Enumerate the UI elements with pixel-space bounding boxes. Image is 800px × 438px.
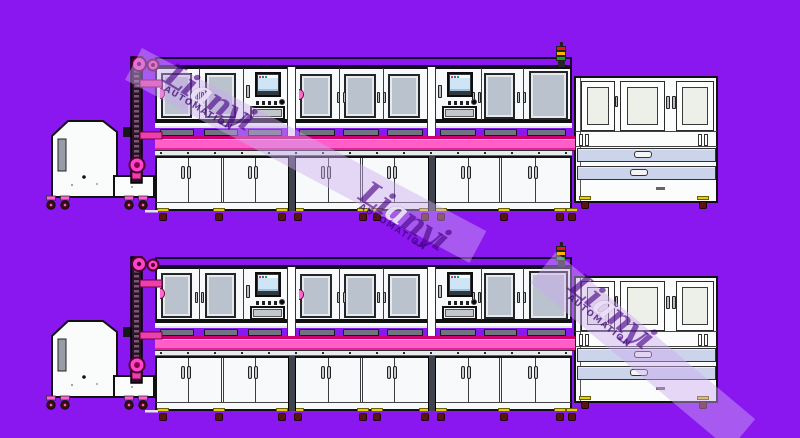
door-seam — [360, 358, 361, 402]
vent — [299, 329, 335, 336]
feeder-and-elevator — [0, 200, 175, 425]
sprocket-hub — [134, 162, 140, 168]
feeder-dot — [82, 375, 86, 379]
rail-rivet — [565, 352, 567, 354]
station-bar — [704, 334, 708, 346]
cabinet-seam — [199, 268, 200, 320]
door-seam — [188, 158, 189, 202]
panel-button — [256, 301, 259, 305]
emergency-button — [279, 299, 285, 305]
rail-rivet — [349, 152, 351, 154]
machine-window — [484, 73, 515, 119]
screen-pixel — [259, 276, 261, 278]
machine-window — [300, 74, 332, 118]
pulley-hub — [151, 63, 155, 67]
cabinet-door-handle — [528, 366, 532, 379]
caster-foot — [369, 208, 385, 221]
door-seam — [499, 158, 500, 202]
conveyor-rail — [155, 150, 572, 156]
cabinet-door-handle — [327, 366, 331, 379]
vent — [440, 129, 476, 136]
machine-window — [388, 274, 420, 318]
rail-rivet — [349, 352, 351, 354]
machine-window — [388, 74, 420, 118]
rail-rivet — [187, 152, 189, 154]
panel-door-handle — [246, 285, 250, 298]
caster-foot — [577, 196, 593, 209]
cabinet-door-handle — [467, 166, 471, 179]
vent — [387, 129, 423, 136]
vent — [527, 129, 566, 136]
vent — [204, 329, 238, 336]
panel-button — [466, 301, 469, 305]
line-roof — [155, 257, 572, 267]
vent — [387, 329, 423, 336]
station-window-pane — [587, 287, 609, 325]
door-handle — [195, 92, 198, 103]
hmi-screen — [258, 275, 278, 291]
panel-button — [274, 101, 277, 105]
screen-pixel — [262, 276, 264, 278]
machine-window — [205, 73, 236, 118]
cabinet-door-handle — [387, 166, 391, 179]
feeder-slot — [58, 339, 66, 371]
door-seam — [535, 358, 536, 402]
machine-window — [529, 71, 568, 120]
elevator-crossbar — [140, 80, 162, 87]
keyboard-tray-inner — [253, 109, 282, 117]
door-seam — [468, 358, 469, 402]
door-handle — [523, 292, 526, 303]
machine-window — [344, 274, 376, 318]
rail-rivet — [538, 352, 540, 354]
rail-rivet — [403, 352, 405, 354]
plinth-line — [156, 202, 571, 203]
rail-rivet — [214, 152, 216, 154]
panel-button — [460, 101, 463, 105]
module-post-lower — [288, 356, 296, 411]
rail-rivet — [268, 152, 270, 154]
station-divider — [575, 346, 717, 347]
sprocket-hub — [134, 362, 140, 368]
station-window-pane — [682, 287, 708, 325]
station-bar — [698, 134, 702, 146]
vent — [248, 129, 282, 136]
cabinet-door-handle — [387, 366, 391, 379]
rail-rivet — [403, 152, 405, 154]
station-window-pane — [627, 87, 658, 125]
cabinet-door-handle — [254, 366, 258, 379]
rail-rivet — [241, 152, 243, 154]
machine-line-row-2 — [0, 200, 800, 425]
panel-button — [268, 301, 271, 305]
door-handle — [201, 292, 204, 303]
vent — [484, 329, 517, 336]
door-handle — [523, 92, 526, 103]
machine-window — [529, 271, 568, 320]
keyboard-tray-inner — [445, 309, 474, 317]
vent — [299, 129, 335, 136]
elevator-crossbar — [140, 132, 162, 139]
keyboard-tray-inner — [445, 109, 474, 117]
caster-foot — [695, 396, 711, 409]
emergency-button — [279, 99, 285, 105]
station-window-pane — [682, 87, 708, 125]
hmi-screen — [450, 275, 470, 291]
panel-button — [262, 301, 265, 305]
floor-mark — [145, 410, 158, 413]
rail-rivet — [322, 352, 324, 354]
rail-rivet — [268, 352, 270, 354]
machine-window — [300, 274, 332, 318]
rail-rivet — [538, 152, 540, 154]
door-handle — [343, 92, 346, 103]
rail-rivet — [241, 352, 243, 354]
cabinet-door-handle — [534, 366, 538, 379]
door-handle — [343, 292, 346, 303]
screen-pixel — [457, 276, 459, 278]
feeder-dot — [71, 184, 73, 186]
cabinet-door-handle — [528, 166, 532, 179]
caster-foot — [496, 208, 512, 221]
rail-rivet — [214, 352, 216, 354]
tower-light-base — [558, 61, 565, 67]
vent — [248, 329, 282, 336]
panel-button — [460, 301, 463, 305]
door-handle — [383, 92, 386, 103]
cabinet-door-handle — [393, 366, 397, 379]
module-post-lower — [428, 356, 436, 411]
panel-button — [448, 301, 451, 305]
module-post-lower — [288, 156, 296, 211]
caster-foot — [564, 208, 580, 221]
panel-door-handle — [438, 285, 442, 298]
door-seam — [255, 358, 256, 402]
door-handle — [377, 292, 380, 303]
cabinet-door-handle — [461, 166, 465, 179]
cabinet-door-handle — [181, 366, 185, 379]
module-post — [287, 267, 296, 338]
door-seam — [499, 358, 500, 402]
door-seam — [394, 158, 395, 202]
cad-drawing-canvas: Lianyi AUTOMATION Lianyi AUTOMATION Lian… — [0, 0, 800, 438]
station-latch — [656, 387, 665, 390]
rail-rivet — [457, 152, 459, 154]
keyboard-tray-inner — [253, 309, 282, 317]
feeder-and-elevator — [0, 0, 175, 225]
station-bar — [579, 334, 583, 346]
elevator-motor — [123, 327, 131, 337]
door-seam — [255, 158, 256, 202]
rail-rivet — [484, 152, 486, 154]
vent — [204, 129, 238, 136]
emergency-button — [471, 299, 477, 305]
door-seam — [501, 158, 502, 202]
door-handle — [517, 92, 520, 103]
cabinet-door-handle — [467, 366, 471, 379]
door-seam — [394, 358, 395, 402]
feeder-slot — [58, 139, 66, 171]
panel-button — [274, 301, 277, 305]
station-divider — [575, 331, 717, 332]
caster-foot — [496, 408, 512, 421]
screen-pixel — [451, 276, 453, 278]
hmi-screen — [450, 75, 470, 91]
screen-pixel — [451, 76, 453, 78]
door-seam — [188, 358, 189, 402]
conveyor-belt — [155, 136, 575, 151]
module-post — [427, 267, 436, 338]
emergency-button — [471, 99, 477, 105]
conveyor-rail — [155, 350, 572, 356]
module-post-lower — [428, 156, 436, 211]
panel-button — [454, 301, 457, 305]
door-handle — [377, 92, 380, 103]
cabinet-door-handle — [461, 366, 465, 379]
cabinet-seam — [243, 68, 244, 120]
module-post — [287, 67, 296, 138]
panel-button — [262, 101, 265, 105]
feeder-dot — [96, 183, 98, 185]
door-seam — [535, 158, 536, 202]
drawer-handle — [630, 369, 648, 376]
cabinet-door-handle — [181, 166, 185, 179]
door-handle — [615, 96, 618, 107]
door-handle — [478, 292, 481, 303]
cabinet-seam — [243, 268, 244, 320]
tower-light-base — [558, 261, 565, 267]
cabinet-door-handle — [321, 366, 325, 379]
table-dot — [131, 386, 133, 388]
feeder-dot — [82, 175, 86, 179]
door-seam — [223, 358, 224, 402]
door-seam — [360, 158, 361, 202]
station-divider — [575, 131, 717, 132]
door-handle — [672, 296, 676, 309]
door-handle — [383, 292, 386, 303]
hmi-screen — [258, 75, 278, 91]
cabinet-door-handle — [248, 366, 252, 379]
door-handle — [201, 92, 204, 103]
elevator-crossbar — [140, 332, 162, 339]
rail-rivet — [565, 152, 567, 154]
rail-rivet — [511, 152, 513, 154]
caster-foot — [211, 208, 227, 221]
caster-foot — [211, 408, 227, 421]
rail-rivet — [295, 352, 297, 354]
door-seam — [362, 358, 363, 402]
door-seam — [328, 158, 329, 202]
vent — [440, 329, 476, 336]
panel-button — [454, 101, 457, 105]
panel-button — [256, 101, 259, 105]
screen-pixel — [454, 76, 456, 78]
panel-button — [448, 101, 451, 105]
station-window-pane — [627, 287, 658, 325]
door-seam — [468, 158, 469, 202]
vent — [343, 329, 379, 336]
cabinet-door-handle — [187, 366, 191, 379]
rail-rivet — [484, 352, 486, 354]
door-seam — [221, 158, 222, 202]
door-seam — [223, 158, 224, 202]
cabinet-door-handle — [321, 166, 325, 179]
door-handle — [337, 292, 340, 303]
panel-button — [268, 101, 271, 105]
screen-pixel — [265, 276, 267, 278]
door-handle — [517, 292, 520, 303]
module-post — [427, 67, 436, 138]
machine-window — [344, 74, 376, 118]
station-divider — [575, 146, 717, 147]
plinth-line — [156, 402, 571, 403]
rail-rivet — [376, 152, 378, 154]
vent — [484, 129, 517, 136]
vent — [527, 329, 566, 336]
caster-foot — [564, 408, 580, 421]
pulley-hub — [137, 62, 141, 66]
rail-rivet — [430, 152, 432, 154]
door-handle — [666, 296, 670, 309]
cabinet-seam — [481, 268, 482, 320]
elevator-motor — [123, 127, 131, 137]
rail-rivet — [430, 352, 432, 354]
station-window-pane — [587, 87, 609, 125]
screen-pixel — [262, 76, 264, 78]
machine-window — [205, 273, 236, 318]
cabinet-seam — [199, 68, 200, 120]
machine-line-row-1 — [0, 0, 800, 225]
door-seam — [362, 158, 363, 202]
rail-rivet — [376, 352, 378, 354]
station-bar — [585, 134, 589, 146]
cabinet-door-handle — [534, 166, 538, 179]
elevator-crossbar — [140, 280, 162, 287]
caster-foot — [695, 196, 711, 209]
rail-rivet — [322, 152, 324, 154]
station-bar — [704, 134, 708, 146]
rail-rivet — [511, 352, 513, 354]
cabinet-door-handle — [254, 166, 258, 179]
vent — [343, 129, 379, 136]
rail-rivet — [295, 152, 297, 154]
door-handle — [615, 296, 618, 307]
line-roof — [155, 57, 572, 67]
pulley-hub — [137, 262, 141, 266]
cabinet-door-handle — [248, 166, 252, 179]
drawer-handle — [634, 351, 652, 358]
cabinet-seam — [481, 68, 482, 120]
panel-button — [466, 101, 469, 105]
rail-rivet — [457, 352, 459, 354]
screen-pixel — [457, 76, 459, 78]
cabinet-door-handle — [327, 166, 331, 179]
drawer-handle — [634, 151, 652, 158]
door-seam — [221, 358, 222, 402]
cabinet-door-handle — [393, 166, 397, 179]
caster-foot — [369, 408, 385, 421]
machine-window — [484, 273, 515, 319]
rail-rivet — [187, 352, 189, 354]
door-handle — [478, 92, 481, 103]
feeder-dot — [71, 384, 73, 386]
pulley-hub — [151, 263, 155, 267]
station-bar — [585, 334, 589, 346]
caster-foot — [577, 396, 593, 409]
door-handle — [195, 292, 198, 303]
panel-door-handle — [246, 85, 250, 98]
conveyor-belt — [155, 336, 575, 351]
feeder-dot — [96, 383, 98, 385]
station-bar — [579, 134, 583, 146]
door-seam — [501, 358, 502, 402]
door-handle — [672, 96, 676, 109]
station-latch — [656, 187, 665, 190]
door-handle — [666, 96, 670, 109]
cabinet-door-handle — [187, 166, 191, 179]
screen-pixel — [259, 76, 261, 78]
panel-door-handle — [438, 85, 442, 98]
screen-pixel — [454, 276, 456, 278]
door-seam — [328, 358, 329, 402]
screen-pixel — [265, 76, 267, 78]
drawer-handle — [630, 169, 648, 176]
door-handle — [337, 92, 340, 103]
station-bar — [698, 334, 702, 346]
table-dot — [131, 186, 133, 188]
